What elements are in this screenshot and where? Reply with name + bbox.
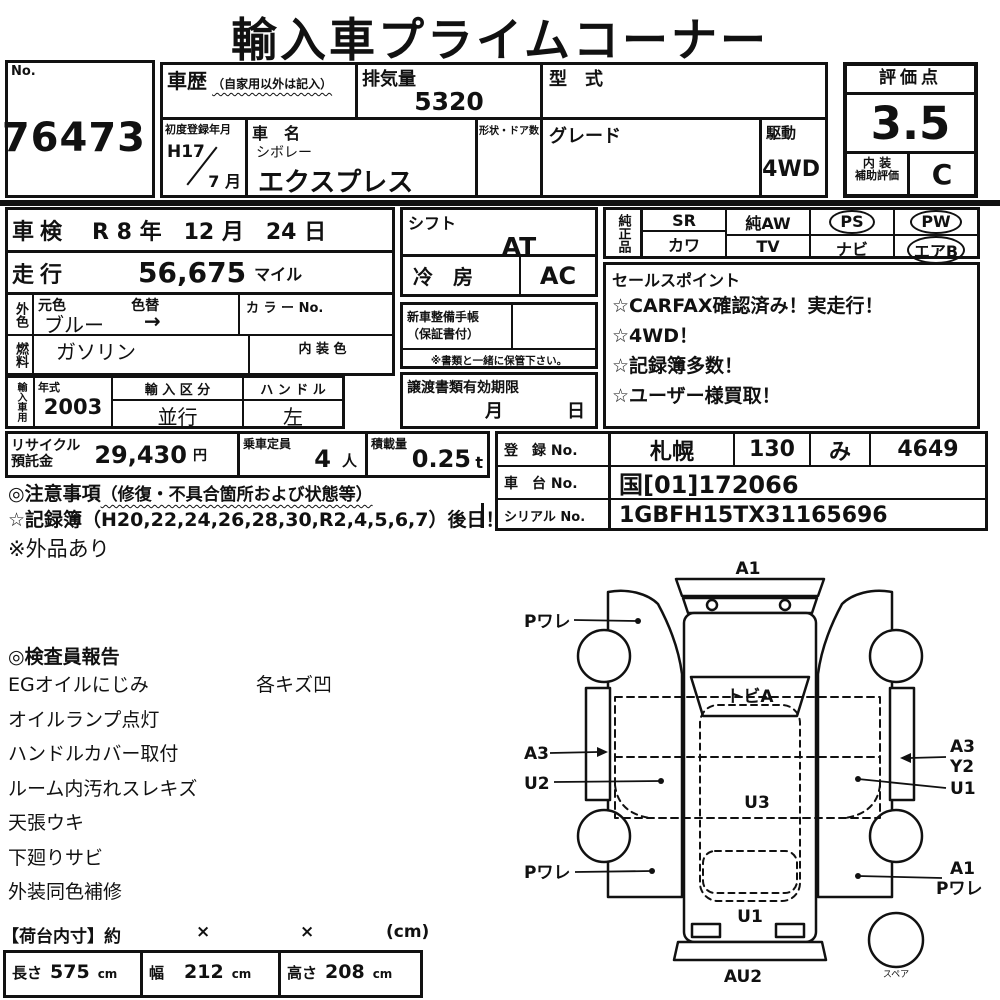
transfer-month-label: 月 [485,397,503,423]
caution-label: ◎注意事項 [8,483,101,505]
maintenance-book-value [513,305,595,348]
score-box: 評価点 3.5 内 装 補助評価 C [843,62,978,198]
diagram-label-u1-right: U1 [950,779,976,799]
ac-value: AC [521,257,595,294]
model-code-label: 型 式 [549,65,825,91]
year-value: 2003 [35,395,111,419]
history-label: 車歴 [167,69,207,93]
section-divider [0,200,1000,206]
record-book-note: ☆記録簿（H20,22,24,26,28,30,R2,4,5,6,7）後日！ [8,505,505,532]
leader-pware-bl [575,871,652,872]
grade-cell: グレード [540,117,762,198]
wiper-pivot-right [780,600,790,610]
car-name-label: 車 名 [252,120,475,144]
caution-note: （修復・不具合箇所および状態等） [101,485,373,505]
fuel-label: 燃料 [8,336,34,373]
recolor-value: → [144,309,161,333]
notes-right-tick [481,503,484,528]
diagram-label-spare: スペア [883,970,909,980]
recycle-value: 29,430 [94,441,187,469]
equipment-sr: SR [643,210,725,230]
sales-point-1: ☆CARFAX確認済み！実走行！ [612,291,971,321]
equipment-pw: PW [910,210,961,234]
capacity-value: 4 [314,445,331,473]
inspector-item-7: 外装同色補修 [8,875,197,910]
cargo-height-value: 208 [325,961,365,983]
history-note: （自家用以外は記入） [212,77,332,91]
diagram-label-pware-bl: Pワレ [524,863,570,883]
first-registration-year: H17 [167,142,205,162]
load-cell: 積載量 0.25 t [365,431,490,478]
registration-table: 登 録 No. 札幌 130 み 4649 車 台 No. 国[01]17206… [495,431,988,531]
leader-pware-tl [574,620,638,621]
diagram-label-a1-br: A1 [950,859,975,879]
taillight-right [776,924,804,937]
cargo-unit: (cm) [386,922,429,942]
chassis-row: 車 台 No. 国[01]172066 [498,465,985,498]
drive-cell: 駆動 4WD [759,117,828,198]
cowl-panel [683,598,817,613]
diagram-label-au2: AU2 [724,967,762,987]
maintenance-book-cell: 新車整備手帳 （保証書付） ※書類と一緒に保管下さい。 [400,302,598,369]
registration-class: 130 [733,434,809,465]
registration-row: 登 録 No. 札幌 130 み 4649 [498,434,985,465]
cargo-height-cell: 高さ 208 cm [278,953,420,995]
model-code-cell: 型 式 [540,62,828,120]
cargo-width-cell: 幅 212 cm [140,953,278,995]
cargo-length-value: 575 [50,961,90,983]
diagram-label-pware-br: Pワレ [936,879,982,899]
lot-number-label: No. [11,64,36,79]
damage-diagram: A1 Pワレ A3 U2 Pワレ トビA U3 U1 AU2 A3 Y2 U1 … [480,550,1000,1000]
lot-number-box: No. 76473 [5,60,155,198]
equipment-header: 純正品 [606,210,643,256]
equipment-kawa: カワ [643,230,725,256]
serial-row: シリアル No. 1GBFH15TX31165696 [498,498,985,531]
transfer-docs-label: 譲渡書類有効期限 [407,377,595,397]
equipment-aw: 純AW [727,210,809,234]
cargo-width-label: 幅 [149,962,164,983]
import-use-label: 輸入車用 [8,378,35,426]
inspector-item-3: ハンドルカバー取付 [8,737,197,772]
interior-color-label: 内 装 色 [250,338,395,357]
diagram-label-u2-left: U2 [524,774,550,794]
original-color-value: ブルー [44,309,104,338]
diagram-label-a3-left: A3 [524,744,549,764]
load-value: 0.25 [412,445,471,473]
drive-label: 駆動 [766,122,821,143]
diagram-label-a3-right: A3 [950,737,975,757]
cargo-header: 【荷台内寸】約 [2,922,121,947]
diagram-label-u1-center: U1 [737,907,763,927]
shaken-label: 車検 [12,214,68,246]
mileage-row: 走行 56,675 マイル [5,250,395,295]
ac-label: 冷 房 [403,257,521,294]
transfer-day-label: 日 [567,397,585,423]
interior-score-sublabel: 補助評価 [847,170,907,182]
inspector-item-1: EGオイルにじみ [8,668,197,703]
right-front-wheel [870,630,922,682]
registration-area: 札幌 [611,434,733,465]
import-class-value: 並行 [113,401,242,430]
inspector-report-title: ◎検査員報告 [8,642,120,669]
drive-value: 4WD [762,157,820,182]
capacity-cell: 乗車定員 4 人 [237,431,368,478]
auction-sheet: 輸入車プライムコーナー No. 76473 車歴 （自家用以外は記入） 排気量 … [0,0,1000,1000]
color-fuel-block: 外色 燃料 元色 色替 ブルー → カ ラ ー No. ガソリン 内 装 色 [5,292,395,376]
mileage-label: 走行 [12,257,68,289]
mileage-unit: マイル [254,261,302,285]
rear-bumper [674,942,826,960]
wiper-pivot-left [707,600,717,610]
year-label: 年式 [38,379,111,395]
grade-label: グレード [549,122,753,148]
shape-doors-cell: 形状・ドア数 [475,117,543,198]
sales-point-3: ☆記録簿多数！ [612,351,971,381]
recycle-label-2: 預託金 [11,455,80,470]
serial-no-value: 1GBFH15TX31165696 [611,500,888,531]
left-rocker-panel [586,688,610,800]
displacement-cell: 排気量 5320 [355,62,543,120]
load-unit: t [475,453,483,472]
leader-a3y2-right [910,757,946,758]
displacement-value: 5320 [358,87,540,116]
diagram-label-a1-top: A1 [736,559,761,579]
recycle-deposit-cell: リサイクル 預託金 29,430 円 [5,431,240,478]
import-block: 輸入車用 年式 2003 輸 入 区 分 並行 ハ ン ド ル 左 [5,375,345,429]
diagram-label-pware-tl: Pワレ [524,612,570,632]
cargo-height-label: 高さ [287,962,317,983]
chassis-no-label: 車 台 No. [498,467,611,498]
exterior-color-label: 外色 [8,295,34,336]
mileage-value: 56,675 [138,256,246,289]
cargo-height-unit: cm [373,967,393,981]
first-registration-month: 7 月 [208,168,241,192]
shaken-value: R 8 年 12 月 24 日 [92,214,326,246]
cargo-width-unit: cm [232,967,252,981]
taillight-left [692,924,720,937]
car-model: エクスプレス [258,162,475,199]
score-label: 評価点 [847,66,974,95]
cargo-x1: × [196,922,210,942]
leader-a3-left [550,752,598,753]
first-registration-cell: 初度登録年月 H17 7 月 [160,117,248,198]
diagram-label-y2-right: Y2 [949,757,974,777]
sales-points-title: セールスポイント [612,267,971,291]
cargo-table: 長さ 575 cm 幅 212 cm 高さ 208 cm [3,950,423,998]
registration-kana: み [809,434,869,465]
cargo-length-unit: cm [98,967,118,981]
registration-no-label: 登 録 No. [498,434,611,465]
cargo-length-cell: 長さ 575 cm [6,953,140,995]
inspector-item-6: 下廻りサビ [8,841,197,876]
inspector-item-2: オイルランプ点灯 [8,703,197,738]
cargo-length-label: 長さ [12,962,42,983]
transfer-docs-cell: 譲渡書類有効期限 月 日 [400,372,598,429]
shaken-row: 車検 R 8 年 12 月 24 日 [5,207,395,253]
equipment-navi: ナビ [811,234,893,260]
spare-wheel [869,913,923,967]
inspector-item-8: 各キズ凹 [256,668,332,703]
leader-u2-left [554,781,661,782]
registration-number: 4649 [869,434,985,465]
capacity-unit: 人 [342,450,357,471]
equipment-ps: PS [829,210,874,234]
chassis-no-value: 国[01]172066 [611,467,799,498]
equipment-grid: 純正品 SR カワ 純AW TV PS ナビ PW エアB [603,207,980,259]
steering-label: ハ ン ド ル [244,378,342,401]
shape-doors-label: 形状・ドア数 [479,122,539,137]
first-registration-label: 初度登録年月 [165,121,245,137]
sales-point-4: ☆ユーザー様買取！ [612,381,971,411]
fuel-value: ガソリン [56,340,136,364]
cargo-x2: × [300,922,314,942]
cargo-width-value: 212 [184,961,224,983]
lot-number-value: 76473 [2,115,146,161]
car-name-cell: 車 名 シボレー エクスプレス [245,117,478,198]
serial-no-label: シリアル No. [498,500,611,531]
score-value: 3.5 [847,95,974,151]
inspector-item-4: ルーム内汚れスレキズ [8,772,197,807]
inspector-item-5: 天張ウキ [8,806,197,841]
steering-value: 左 [244,401,342,430]
shift-cell: シフト AT [400,207,598,257]
caution-heading: ◎注意事項（修復・不具合箇所および状態等） [8,479,373,506]
aftermarket-parts-note: ※外品あり [8,533,110,563]
maintenance-book-label: 新車整備手帳 [407,308,511,325]
equipment-tv: TV [727,234,809,256]
sales-points-box: セールスポイント ☆CARFAX確認済み！実走行！ ☆4WD！ ☆記録簿多数！ … [603,262,980,429]
shift-label: シフト [408,214,456,233]
left-front-wheel [578,630,630,682]
interior-score-value: C [910,154,974,194]
recycle-label-1: リサイクル [11,439,80,454]
color-no-label: カ ラ ー No. [246,297,395,316]
ac-cell: 冷 房 AC [400,254,598,297]
maintenance-book-sublabel: （保証書付） [407,325,511,342]
equipment-airbag: エアB [907,236,965,264]
history-cell: 車歴 （自家用以外は記入） [160,62,358,120]
import-class-label: 輸 入 区 分 [113,378,242,401]
car-maker: シボレー [256,142,475,162]
keep-documents-note: ※書類と一緒に保管下さい。 [403,348,595,368]
recycle-unit: 円 [193,445,207,465]
diagram-label-u3: U3 [744,793,770,813]
diagram-label-tobia: トビA [726,687,774,707]
front-bumper [676,579,824,596]
sales-point-2: ☆4WD！ [612,321,971,351]
